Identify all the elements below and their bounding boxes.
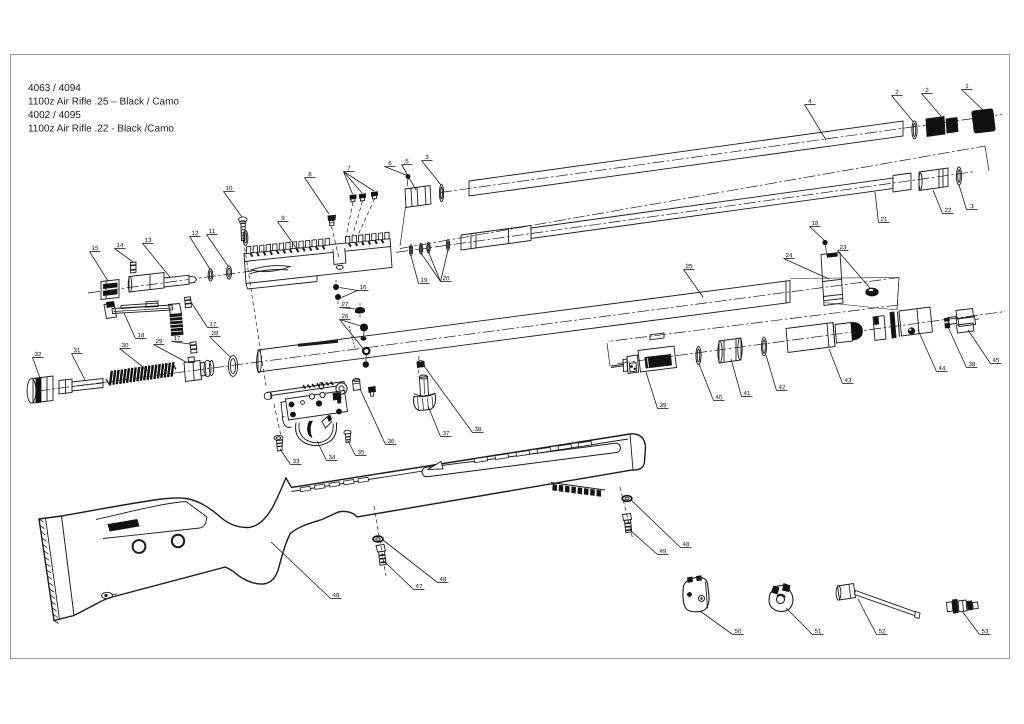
svg-text:10: 10 xyxy=(226,185,233,192)
svg-text:17: 17 xyxy=(174,335,181,342)
svg-text:48: 48 xyxy=(333,592,340,599)
svg-text:15: 15 xyxy=(92,245,99,252)
svg-text:18: 18 xyxy=(812,220,819,227)
svg-text:4: 4 xyxy=(808,98,812,105)
svg-text:30: 30 xyxy=(122,342,129,349)
svg-text:36: 36 xyxy=(388,438,395,445)
svg-text:41: 41 xyxy=(744,390,751,397)
svg-text:51: 51 xyxy=(815,628,822,635)
svg-text:25: 25 xyxy=(686,263,693,270)
svg-text:4063 / 4094: 4063 / 4094 xyxy=(28,83,81,94)
svg-text:32: 32 xyxy=(35,351,42,358)
svg-text:29: 29 xyxy=(156,338,163,345)
svg-text:14: 14 xyxy=(117,242,124,249)
svg-text:37: 37 xyxy=(443,430,450,437)
svg-text:27: 27 xyxy=(342,301,349,308)
svg-text:42: 42 xyxy=(779,384,786,391)
svg-text:16: 16 xyxy=(360,284,367,291)
svg-text:1100z Air Rifle .22 - Black /C: 1100z Air Rifle .22 - Black /Camo xyxy=(28,124,174,135)
svg-text:7: 7 xyxy=(347,165,351,172)
svg-text:48: 48 xyxy=(440,576,447,583)
svg-text:33: 33 xyxy=(293,458,300,465)
svg-text:12: 12 xyxy=(192,230,199,237)
svg-text:21: 21 xyxy=(881,216,888,223)
svg-text:45: 45 xyxy=(993,357,1000,364)
svg-text:3: 3 xyxy=(970,203,974,210)
svg-text:23: 23 xyxy=(840,244,847,251)
svg-text:6: 6 xyxy=(388,160,392,167)
svg-text:43: 43 xyxy=(845,377,852,384)
svg-text:13: 13 xyxy=(145,237,152,244)
svg-text:19: 19 xyxy=(421,277,428,284)
svg-text:18: 18 xyxy=(138,332,145,339)
svg-text:52: 52 xyxy=(879,628,886,635)
svg-text:3: 3 xyxy=(425,154,429,161)
svg-text:24: 24 xyxy=(786,252,793,259)
svg-text:26: 26 xyxy=(342,313,349,320)
svg-text:11: 11 xyxy=(209,228,216,235)
svg-text:9: 9 xyxy=(281,215,285,222)
svg-text:31: 31 xyxy=(74,347,81,354)
svg-text:22: 22 xyxy=(945,207,952,214)
svg-text:44: 44 xyxy=(939,365,946,372)
svg-text:2: 2 xyxy=(925,87,929,94)
svg-text:49: 49 xyxy=(660,548,667,555)
svg-text:35: 35 xyxy=(358,449,365,456)
svg-text:39: 39 xyxy=(660,402,667,409)
svg-text:38: 38 xyxy=(475,426,482,433)
svg-text:4002 / 4095: 4002 / 4095 xyxy=(28,110,81,121)
svg-text:38: 38 xyxy=(969,361,976,368)
svg-text:50: 50 xyxy=(735,628,742,635)
svg-text:47: 47 xyxy=(416,583,423,590)
svg-text:1: 1 xyxy=(965,83,969,90)
svg-text:48: 48 xyxy=(683,541,690,548)
svg-text:53: 53 xyxy=(982,628,989,635)
svg-text:28: 28 xyxy=(212,330,219,337)
svg-text:20: 20 xyxy=(443,275,450,282)
svg-text:40: 40 xyxy=(716,394,723,401)
svg-text:8: 8 xyxy=(308,171,312,178)
svg-text:17: 17 xyxy=(210,321,217,328)
svg-text:1100z Air Rifle .25 – Black /: 1100z Air Rifle .25 – Black / Camo xyxy=(28,97,179,108)
svg-text:2: 2 xyxy=(895,89,899,96)
svg-text:5: 5 xyxy=(405,158,409,165)
svg-text:34: 34 xyxy=(329,454,336,461)
